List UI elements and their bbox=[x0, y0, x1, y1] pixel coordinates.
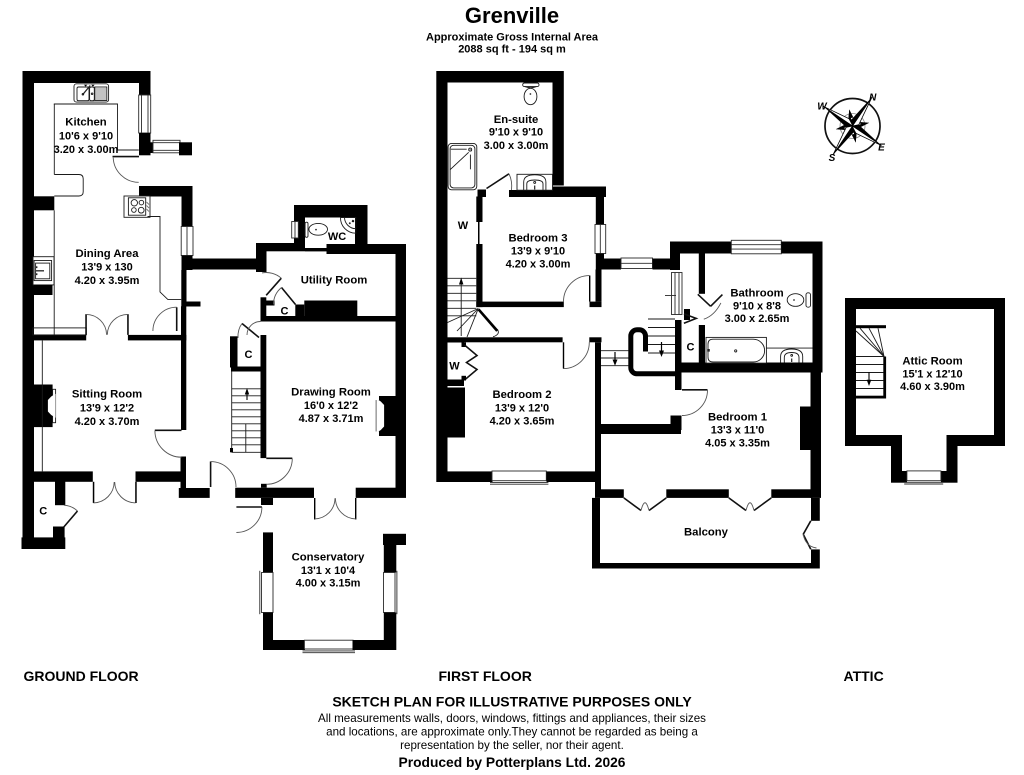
svg-text:3.20 x 3.00m: 3.20 x 3.00m bbox=[54, 144, 119, 156]
svg-text:N: N bbox=[869, 93, 877, 104]
svg-text:3.00 x 2.65m: 3.00 x 2.65m bbox=[725, 313, 790, 325]
svg-text:Grenville: Grenville bbox=[465, 3, 559, 28]
svg-text:Attic Room: Attic Room bbox=[902, 356, 962, 368]
svg-text:Kitchen: Kitchen bbox=[65, 117, 107, 129]
svg-text:C: C bbox=[245, 349, 253, 361]
svg-text:C: C bbox=[39, 506, 47, 518]
svg-text:C: C bbox=[281, 306, 289, 318]
svg-text:Bathroom: Bathroom bbox=[730, 288, 783, 300]
svg-text:SKETCH PLAN FOR ILLUSTRATIVE P: SKETCH PLAN FOR ILLUSTRATIVE PURPOSES ON… bbox=[332, 694, 692, 710]
svg-text:4.87 x 3.71m: 4.87 x 3.71m bbox=[299, 413, 364, 425]
svg-text:9'10 x 9'10: 9'10 x 9'10 bbox=[489, 127, 543, 139]
svg-text:2088 sq ft - 194 sq m: 2088 sq ft - 194 sq m bbox=[458, 44, 566, 56]
svg-text:Sitting Room: Sitting Room bbox=[72, 389, 142, 401]
svg-text:W: W bbox=[449, 361, 460, 373]
svg-text:All measurements walls, doors,: All measurements walls, doors, windows, … bbox=[318, 712, 706, 725]
svg-text:4.20 x 3.65m: 4.20 x 3.65m bbox=[490, 416, 555, 428]
svg-text:4.20 x 3.95m: 4.20 x 3.95m bbox=[75, 275, 140, 287]
svg-text:representation by the seller,: representation by the seller, nor their … bbox=[400, 739, 624, 752]
svg-text:Drawing Room: Drawing Room bbox=[291, 387, 371, 399]
svg-text:9'10 x 8'8: 9'10 x 8'8 bbox=[733, 301, 781, 313]
svg-text:Balcony: Balcony bbox=[684, 527, 729, 539]
svg-text:4.05 x 3.35m: 4.05 x 3.35m bbox=[705, 438, 770, 450]
svg-text:13'9 x 12'2: 13'9 x 12'2 bbox=[80, 403, 134, 415]
svg-text:4.00 x 3.15m: 4.00 x 3.15m bbox=[296, 578, 361, 590]
svg-text:13'9 x 9'10: 13'9 x 9'10 bbox=[511, 246, 565, 258]
svg-text:En-suite: En-suite bbox=[494, 114, 539, 126]
svg-text:Bedroom 1: Bedroom 1 bbox=[708, 412, 767, 424]
svg-text:13'9 x 130: 13'9 x 130 bbox=[81, 262, 133, 274]
svg-text:E: E bbox=[878, 143, 885, 154]
svg-text:Dining Area: Dining Area bbox=[76, 248, 140, 260]
svg-text:13'9 x 12'0: 13'9 x 12'0 bbox=[495, 403, 549, 415]
svg-text:C: C bbox=[687, 342, 695, 354]
svg-text:Utility Room: Utility Room bbox=[301, 275, 368, 287]
svg-text:10'6 x 9'10: 10'6 x 9'10 bbox=[59, 131, 113, 143]
svg-text:15'1 x 12'10: 15'1 x 12'10 bbox=[902, 369, 962, 381]
svg-text:Conservatory: Conservatory bbox=[292, 552, 366, 564]
svg-text:W: W bbox=[458, 220, 469, 232]
svg-text:4.60 x 3.90m: 4.60 x 3.90m bbox=[900, 381, 965, 393]
svg-text:13'1 x 10'4: 13'1 x 10'4 bbox=[301, 565, 356, 577]
svg-text:4.20 x 3.70m: 4.20 x 3.70m bbox=[75, 416, 140, 428]
svg-text:W: W bbox=[817, 102, 828, 113]
svg-text:Produced by Potterplans Ltd. 2: Produced by Potterplans Ltd. 2026 bbox=[399, 755, 626, 770]
svg-text:Bedroom 3: Bedroom 3 bbox=[508, 233, 567, 245]
svg-text:FIRST FLOOR: FIRST FLOOR bbox=[439, 668, 532, 684]
svg-text:4.20 x 3.00m: 4.20 x 3.00m bbox=[506, 259, 571, 271]
svg-text:Approximate Gross Internal Are: Approximate Gross Internal Area bbox=[426, 32, 599, 44]
svg-text:WC: WC bbox=[328, 231, 346, 243]
svg-text:Bedroom 2: Bedroom 2 bbox=[492, 389, 551, 401]
svg-text:GROUND FLOOR: GROUND FLOOR bbox=[24, 668, 139, 684]
svg-text:ATTIC: ATTIC bbox=[844, 668, 884, 684]
svg-text:13'3 x 11'0: 13'3 x 11'0 bbox=[711, 425, 765, 437]
svg-text:and locations, are approximate: and locations, are approximate only.They… bbox=[326, 726, 698, 739]
svg-text:16'0 x 12'2: 16'0 x 12'2 bbox=[304, 400, 358, 412]
svg-text:3.00 x 3.00m: 3.00 x 3.00m bbox=[484, 140, 549, 152]
svg-text:S: S bbox=[829, 153, 836, 164]
